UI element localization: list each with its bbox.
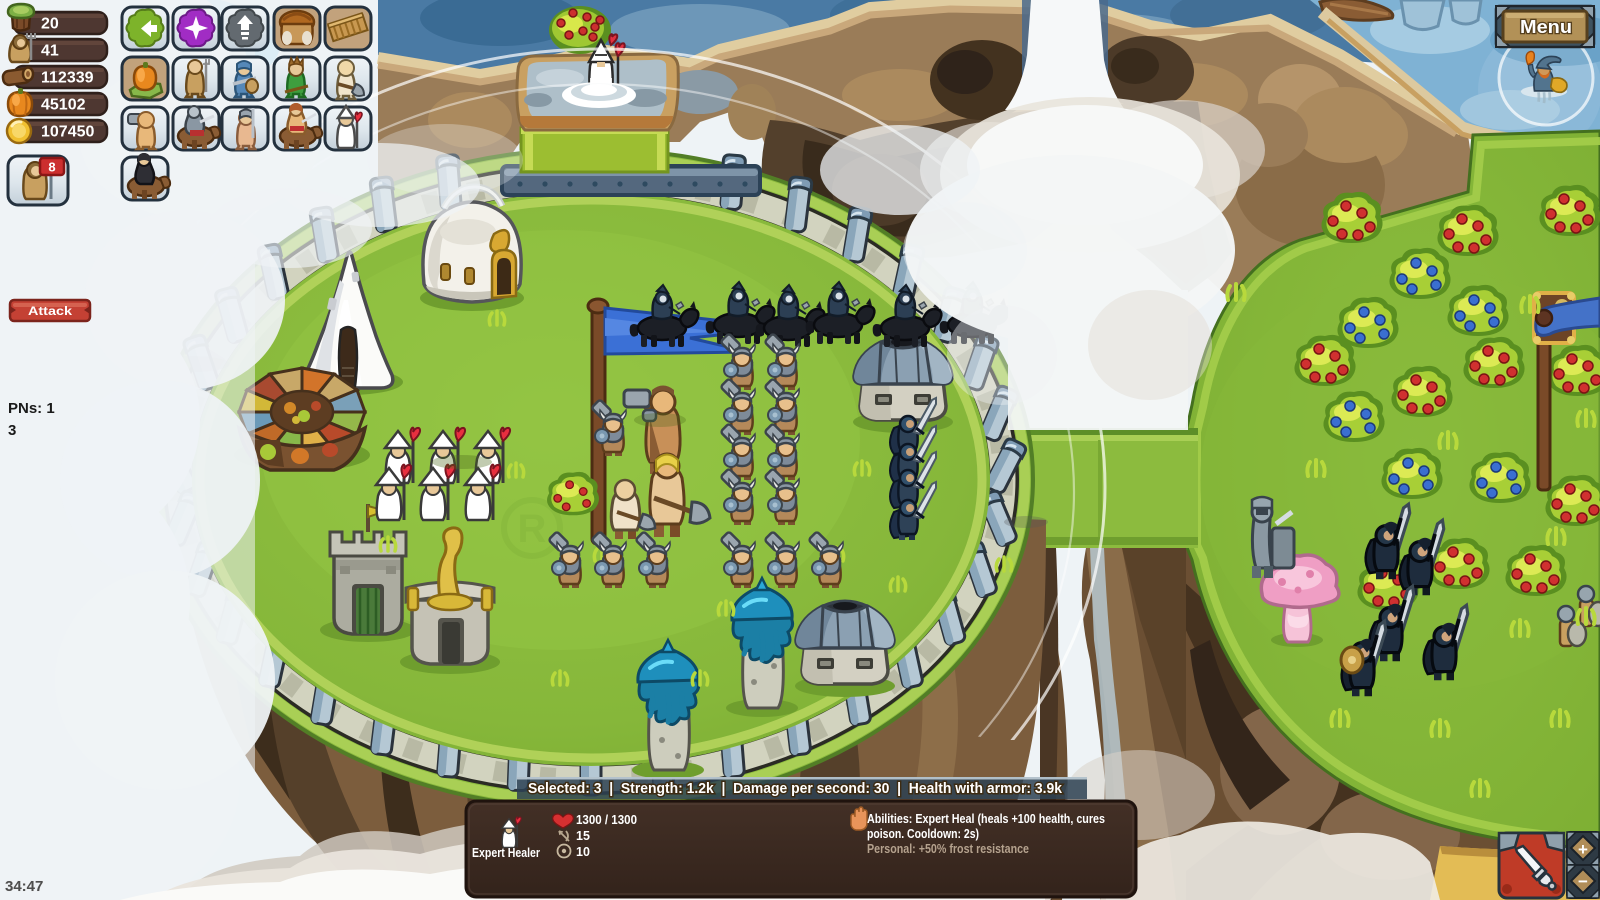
svg-text:+: + [1578, 840, 1588, 859]
svg-text:1300 / 1300: 1300 / 1300 [576, 813, 637, 827]
svg-text:Expert Healer: Expert Healer [472, 846, 540, 860]
svg-text:45102: 45102 [41, 97, 86, 114]
svg-text:PNs: 1: PNs: 1 [8, 400, 55, 417]
svg-text:8: 8 [48, 160, 55, 175]
svg-text:Selected: 3 | Strength: 1.2k: Selected: 3 | Strength: 1.2k | Damage pe… [528, 780, 1063, 797]
svg-text:34:47: 34:47 [5, 878, 43, 895]
svg-text:20: 20 [41, 16, 59, 33]
svg-text:112339: 112339 [41, 70, 94, 87]
svg-text:Menu: Menu [1520, 17, 1572, 37]
svg-text:Attack: Attack [28, 304, 72, 318]
svg-text:−: − [1578, 872, 1588, 891]
svg-text:10: 10 [576, 845, 590, 859]
svg-text:15: 15 [576, 829, 590, 843]
svg-text:poison. Cooldown: 2s): poison. Cooldown: 2s) [867, 827, 979, 841]
svg-text:Personal: +50% frost resistanc: Personal: +50% frost resistance [867, 842, 1029, 856]
svg-text:3: 3 [8, 422, 16, 439]
svg-text:R: R [518, 507, 547, 551]
svg-text:41: 41 [41, 43, 59, 60]
svg-text:Abilities: Expert Heal (heals: Abilities: Expert Heal (heals +100 healt… [867, 812, 1105, 826]
svg-text:107450: 107450 [41, 124, 94, 141]
